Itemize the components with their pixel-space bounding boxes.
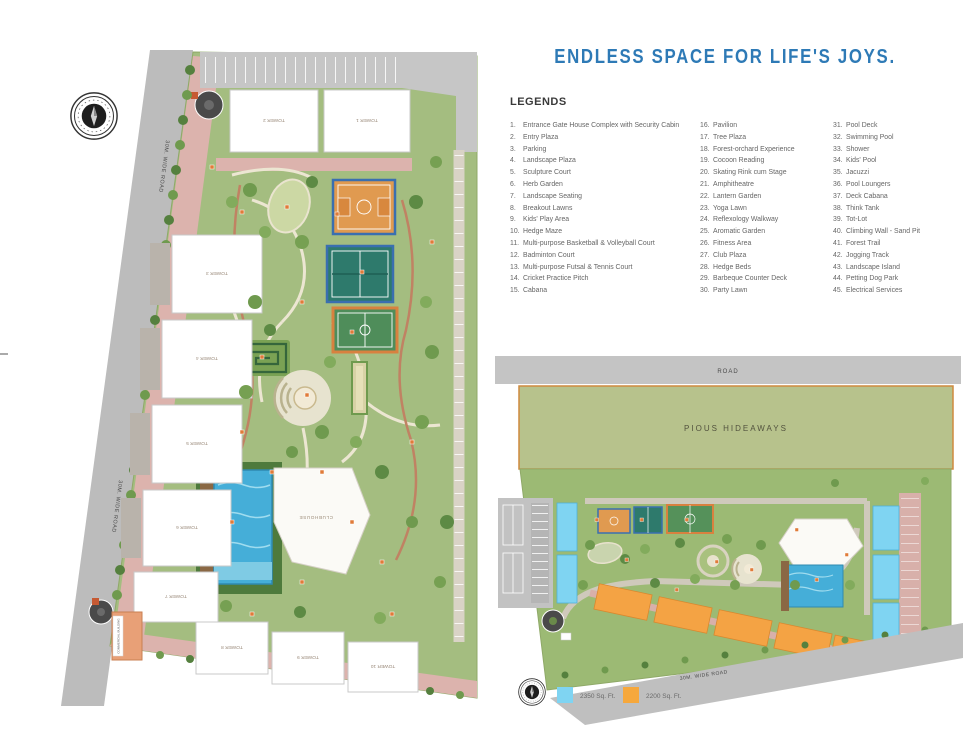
legend-item-label: Pavilion: [713, 120, 833, 132]
legend-item-number: 38.: [833, 203, 846, 215]
legends-column-2: 16.Pavilion17.Tree Plaza18.Forest-orchar…: [700, 120, 833, 297]
legend-item-number: 22.: [700, 191, 713, 203]
tower-block: TOWER 9: [272, 632, 344, 684]
basketball-court: [333, 180, 395, 234]
legends-columns: 1.Entrance Gate House Complex with Secur…: [510, 120, 962, 297]
legend-item-label: Tot-Lot: [846, 214, 962, 226]
legend-item-number: 33.: [833, 144, 846, 156]
legend-item-number: 6.: [510, 179, 523, 191]
legend-swatch-2200: [623, 687, 639, 703]
legend-item-number: 14.: [510, 273, 523, 285]
legends-heading: LEGENDS: [510, 96, 962, 108]
legend-item-number: 43.: [833, 262, 846, 274]
legend-item: 18.Forest-orchard Experience: [700, 144, 833, 156]
legend-item-label: Forest Trail: [846, 238, 962, 250]
futsal-tennis-court: [333, 308, 397, 352]
legend-item-number: 11.: [510, 238, 523, 250]
legend-item: 16.Pavilion: [700, 120, 833, 132]
legend-item: 41.Forest Trail: [833, 238, 962, 250]
legend-item-label: Herb Garden: [523, 179, 700, 191]
svg-text:TOWER 2: TOWER 2: [263, 117, 285, 123]
legend-item: 36.Pool Loungers: [833, 179, 962, 191]
legend-item: 45.Electrical Services: [833, 285, 962, 297]
legend-item-label: Think Tank: [846, 203, 962, 215]
legends-column-3: 31.Pool Deck32.Swimming Pool33.Shower34.…: [833, 120, 962, 297]
legend-item-number: 36.: [833, 179, 846, 191]
legend-item-label: Electrical Services: [846, 285, 962, 297]
legend-item-number: 7.: [510, 191, 523, 203]
legend-item: 39.Tot-Lot: [833, 214, 962, 226]
legend-item-label: Club Plaza: [713, 250, 833, 262]
legend-item-label: Parking: [523, 144, 700, 156]
legend-item: 9.Kids' Play Area: [510, 214, 700, 226]
legend-item-label: Landscape Seating: [523, 191, 700, 203]
legend-item-number: 4.: [510, 155, 523, 167]
legend-item-label: Pool Deck: [846, 120, 962, 132]
legend-item: 40.Climbing Wall - Sand Pit: [833, 226, 962, 238]
neighbor-plot: PIOUS HIDEAWAYS: [519, 386, 953, 469]
legend-item-number: 37.: [833, 191, 846, 203]
legend-item: 15.Cabana: [510, 285, 700, 297]
legend-swatch-2350: [557, 687, 573, 703]
tower-block: TOWER 2: [230, 90, 318, 152]
legend-item: 8.Breakout Lawns: [510, 203, 700, 215]
legend-item: 22.Lantern Garden: [700, 191, 833, 203]
page-title: ENDLESS SPACE FOR LIFE'S JOYS.: [532, 46, 918, 69]
legend-item-number: 45.: [833, 285, 846, 297]
legend-item-label: Fitness Area: [713, 238, 833, 250]
legend-item: 31.Pool Deck: [833, 120, 962, 132]
legend-item-number: 34.: [833, 155, 846, 167]
legend-item: 28.Hedge Beds: [700, 262, 833, 274]
legend-item: 34.Kids' Pool: [833, 155, 962, 167]
tower-block: TOWER 5: [130, 405, 242, 483]
legend-item-label: Jogging Track: [846, 250, 962, 262]
legend-item: 43.Landscape Island: [833, 262, 962, 274]
legend-item-number: 10.: [510, 226, 523, 238]
legend-item-number: 35.: [833, 167, 846, 179]
legend-item-label: Badminton Court: [523, 250, 700, 262]
legend-item: 4.Landscape Plaza: [510, 155, 700, 167]
cricket-practice-pitch: [352, 362, 367, 414]
legend-item: 25.Aromatic Garden: [700, 226, 833, 238]
circular-plaza: [698, 546, 728, 576]
legend-item-label: Party Lawn: [713, 285, 833, 297]
neighbor-label: PIOUS HIDEAWAYS: [684, 424, 788, 433]
legend-item-label: Forest-orchard Experience: [713, 144, 833, 156]
legend-item-label: Hedge Beds: [713, 262, 833, 274]
legend-item-number: 32.: [833, 132, 846, 144]
tower-block: TOWER 3: [150, 235, 262, 313]
legend-item-number: 13.: [510, 262, 523, 274]
legend-item-number: 5.: [510, 167, 523, 179]
legend-item-label: Multi-purpose Basketball & Volleyball Co…: [523, 238, 700, 250]
legend-item-label: Landscape Island: [846, 262, 962, 274]
legend-item: 37.Deck Cabana: [833, 191, 962, 203]
legend-item-number: 3.: [510, 144, 523, 156]
legend-item: 14.Cricket Practice Pitch: [510, 273, 700, 285]
legend-item-number: 30.: [700, 285, 713, 297]
svg-text:TOWER 6: TOWER 6: [176, 524, 198, 530]
legend-item-label: Petting Dog Park: [846, 273, 962, 285]
legend-item-label: Lantern Garden: [713, 191, 833, 203]
legend-item: 2.Entry Plaza: [510, 132, 700, 144]
legend-item: 29.Barbeque Counter Deck: [700, 273, 833, 285]
legend-item: 42.Jogging Track: [833, 250, 962, 262]
compass-icon: [71, 93, 117, 139]
legend-item-number: 17.: [700, 132, 713, 144]
legend-item-number: 24.: [700, 214, 713, 226]
legend-item-label: Jacuzzi: [846, 167, 962, 179]
commercial-label: COMMERCIAL BUILDING: [117, 618, 121, 654]
legend-item-number: 1.: [510, 120, 523, 132]
legend-item: 38.Think Tank: [833, 203, 962, 215]
legend-item: 12.Badminton Court: [510, 250, 700, 262]
master-plan-map: 30M. WIDE ROAD 30M. WIDE ROAD: [0, 0, 490, 730]
legend-item-label: Aromatic Garden: [713, 226, 833, 238]
legend-item: 10.Hedge Maze: [510, 226, 700, 238]
legend-item-label: Cocoon Reading: [713, 155, 833, 167]
tennis-courts: [634, 507, 662, 533]
svg-text:TOWER 5: TOWER 5: [186, 440, 208, 446]
compass-icon: [519, 679, 546, 706]
legend-item-label: Multi-purpose Futsal & Tennis Court: [523, 262, 700, 274]
legend-item-number: 12.: [510, 250, 523, 262]
commercial-building: COMMERCIAL BUILDING: [112, 612, 142, 660]
legend-item: 11.Multi-purpose Basketball & Volleyball…: [510, 238, 700, 250]
legend-item-number: 27.: [700, 250, 713, 262]
legend-item-label: Breakout Lawns: [523, 203, 700, 215]
legend-item-label: Landscape Plaza: [523, 155, 700, 167]
legend-item: 7.Landscape Seating: [510, 191, 700, 203]
svg-text:TOWER 4: TOWER 4: [196, 355, 218, 361]
legends-section: LEGENDS 1.Entrance Gate House Complex wi…: [510, 96, 962, 297]
legend-item-number: 28.: [700, 262, 713, 274]
amphitheatre: [732, 554, 762, 584]
svg-text:TOWER 3: TOWER 3: [206, 270, 228, 276]
legend-item-number: 8.: [510, 203, 523, 215]
legend-item-label: Sculpture Court: [523, 167, 700, 179]
legend-item-number: 25.: [700, 226, 713, 238]
legend-item-label: Kids' Play Area: [523, 214, 700, 226]
legend-item-number: 21.: [700, 179, 713, 191]
legend-item-label: Deck Cabana: [846, 191, 962, 203]
legend-item-number: 9.: [510, 214, 523, 226]
legend-item-number: 2.: [510, 132, 523, 144]
legend-item-label: Reflexology Walkway: [713, 214, 833, 226]
legend-item-label: Climbing Wall - Sand Pit: [846, 226, 962, 238]
legend-item: 35.Jacuzzi: [833, 167, 962, 179]
legend-item: 20.Skating Rink cum Stage: [700, 167, 833, 179]
legend-item: 27.Club Plaza: [700, 250, 833, 262]
legend-item-number: 31.: [833, 120, 846, 132]
legend-item-label: Kids' Pool: [846, 155, 962, 167]
tower-block: TOWER 1: [324, 90, 410, 152]
legend-item-number: 18.: [700, 144, 713, 156]
legend-item-label: Pool Loungers: [846, 179, 962, 191]
legend-label-2350: 2350 Sq. Ft.: [580, 693, 616, 700]
legend-item-number: 26.: [700, 238, 713, 250]
road-label: ROAD: [717, 369, 738, 375]
tower-block: TOWER 4: [140, 320, 252, 398]
svg-text:TOWER 10: TOWER 10: [370, 663, 395, 669]
legend-item: 17.Tree Plaza: [700, 132, 833, 144]
legend-item-label: Entrance Gate House Complex with Securit…: [523, 120, 700, 132]
legend-item-number: 29.: [700, 273, 713, 285]
legend-item: 6.Herb Garden: [510, 179, 700, 191]
legend-item: 1.Entrance Gate House Complex with Secur…: [510, 120, 700, 132]
legend-item-label: Barbeque Counter Deck: [713, 273, 833, 285]
legend-item-label: Amphitheatre: [713, 179, 833, 191]
phase-plan-map: ROAD PIOUS HIDEAWAYS: [495, 353, 965, 730]
north-parking: [200, 52, 404, 88]
legend-item-number: 15.: [510, 285, 523, 297]
basketball-court: [598, 509, 630, 533]
legend-item: 5.Sculpture Court: [510, 167, 700, 179]
legend-item-number: 39.: [833, 214, 846, 226]
legend-item: 21.Amphitheatre: [700, 179, 833, 191]
legend-item-number: 41.: [833, 238, 846, 250]
legend-item-number: 44.: [833, 273, 846, 285]
legend-item-label: Swimming Pool: [846, 132, 962, 144]
legend-item-number: 19.: [700, 155, 713, 167]
amphitheatre: [275, 370, 331, 426]
svg-text:TOWER 9: TOWER 9: [297, 654, 319, 660]
legend-item-label: Skating Rink cum Stage: [713, 167, 833, 179]
legend-item-number: 40.: [833, 226, 846, 238]
legend-item: 32.Swimming Pool: [833, 132, 962, 144]
north-road: ROAD: [495, 356, 961, 384]
svg-text:TOWER 7: TOWER 7: [165, 593, 187, 599]
legend-item-label: Cricket Practice Pitch: [523, 273, 700, 285]
legend-item-label: Cabana: [523, 285, 700, 297]
tower-block: TOWER 10: [348, 642, 418, 692]
legend-item: 30.Party Lawn: [700, 285, 833, 297]
legend-item: 26.Fitness Area: [700, 238, 833, 250]
legend-item: 3.Parking: [510, 144, 700, 156]
legend-item-label: Shower: [846, 144, 962, 156]
legend-item-label: Entry Plaza: [523, 132, 700, 144]
legend-item-number: 23.: [700, 203, 713, 215]
legend-item: 19.Cocoon Reading: [700, 155, 833, 167]
legend-item-label: Yoga Lawn: [713, 203, 833, 215]
west-parking: [498, 498, 553, 608]
brochure-page: 30M. WIDE ROAD 30M. WIDE ROAD: [0, 0, 967, 730]
legend-label-2200: 2200 Sq. Ft.: [646, 693, 682, 700]
svg-text:TOWER 8: TOWER 8: [221, 644, 243, 650]
clubhouse-label: CLUBHOUSE: [299, 515, 333, 520]
legend-item-label: Tree Plaza: [713, 132, 833, 144]
svg-text:TOWER 1: TOWER 1: [356, 117, 378, 123]
legend-item: 13.Multi-purpose Futsal & Tennis Court: [510, 262, 700, 274]
football-court: [667, 505, 713, 533]
legends-column-1: 1.Entrance Gate House Complex with Secur…: [510, 120, 700, 297]
legend-item: 33.Shower: [833, 144, 962, 156]
tower-block: TOWER 8: [196, 622, 268, 674]
legend-item: 23.Yoga Lawn: [700, 203, 833, 215]
legend-item: 24.Reflexology Walkway: [700, 214, 833, 226]
legend-item-number: 20.: [700, 167, 713, 179]
legend-item-label: Hedge Maze: [523, 226, 700, 238]
legend-item-number: 16.: [700, 120, 713, 132]
tower-block: TOWER 7: [134, 572, 218, 622]
legend-item-number: 42.: [833, 250, 846, 262]
tower-block: TOWER 6: [121, 490, 231, 566]
legend-item: 44.Petting Dog Park: [833, 273, 962, 285]
